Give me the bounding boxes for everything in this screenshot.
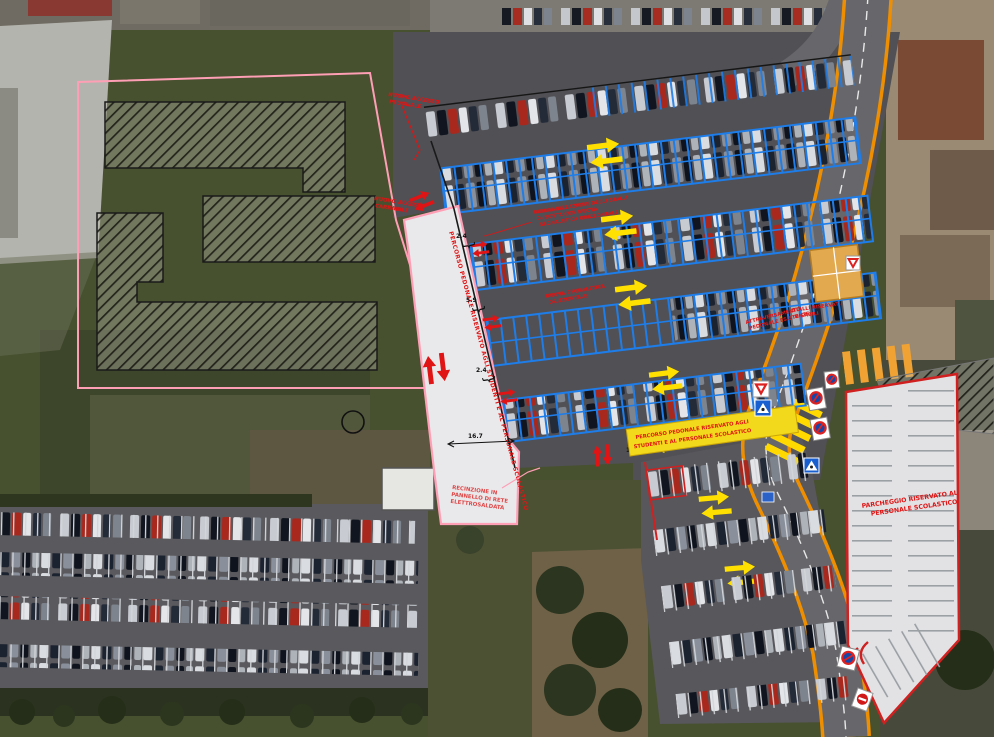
parked-cars-top-row	[500, 8, 830, 25]
dim-stall-a: 2.4	[456, 233, 467, 240]
no-parking-sign	[806, 387, 826, 411]
pedestrian-crossing-sign	[755, 400, 771, 416]
pedestrian-crossing-sign	[804, 458, 819, 473]
no-parking-sign	[824, 371, 840, 389]
yield-sign	[846, 256, 860, 270]
blue-info-sign	[762, 492, 774, 502]
red-roof-building	[28, 0, 112, 16]
no-parking-sign	[810, 417, 830, 441]
hatched-building-b	[203, 196, 375, 262]
site-plan-svg: PERCORSO PEDONALE RISERVATO AGLI STUDENT…	[0, 0, 994, 737]
yield-sign	[753, 381, 769, 397]
dim-stall-b: 2.4	[476, 367, 487, 374]
site-plan-image: PERCORSO PEDONALE RISERVATO AGLI STUDENT…	[0, 0, 994, 737]
dim-corridor-width: 16.7	[468, 433, 483, 440]
apartment-block-left	[0, 88, 18, 238]
dim-aisle: 5.9	[466, 297, 477, 304]
reserved-orange-stalls	[810, 245, 864, 302]
small-building	[382, 468, 434, 510]
